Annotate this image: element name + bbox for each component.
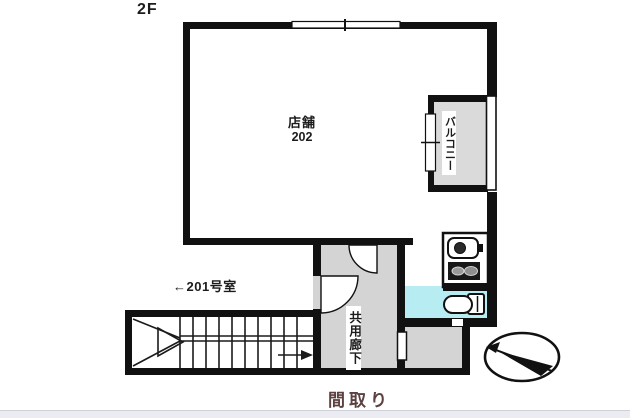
- stair-up-arrow-head: [301, 350, 313, 360]
- toilet-icon: [444, 294, 484, 314]
- footer-strip: [0, 410, 630, 418]
- toilet-bottom-notch: [452, 319, 463, 326]
- balcony-railing: [487, 96, 497, 190]
- balcony-floor: [432, 100, 487, 187]
- wall-right-upper: [487, 22, 497, 97]
- wall-toilet-top: [443, 283, 496, 291]
- room-shop-number: 202: [272, 130, 332, 145]
- room-shop-name: 店舗: [272, 115, 332, 130]
- stove-burner-icon: [465, 267, 478, 276]
- staircase: [133, 317, 313, 368]
- neighbor-room-label: ←201号室: [173, 276, 237, 295]
- door-leaf-corridor-right: [398, 332, 407, 360]
- toilet-bowl: [444, 296, 472, 313]
- wall-shop-bottom: [183, 238, 413, 245]
- wall-left: [183, 22, 190, 245]
- wall-corridor-left-lower: [313, 309, 321, 372]
- wall-landing-right: [462, 325, 470, 373]
- wall-corridor-left-upper: [313, 243, 321, 276]
- room-shop-label: 店舗 202: [272, 115, 332, 145]
- plan-caption: 間取り: [328, 386, 391, 411]
- balcony-label: バルコニー: [442, 111, 456, 175]
- wall-right-lower: [487, 192, 497, 327]
- stair-diagonal-top: [133, 319, 180, 338]
- wall-balcony-left-b: [428, 171, 434, 187]
- wall-stairs-left: [125, 310, 132, 373]
- stove-burner-icon: [452, 267, 464, 275]
- north-compass-icon: [485, 333, 559, 381]
- floorplan-page: 2F 店舗 202 バルコニー ←201号室 共用廊下 間取り: [0, 0, 630, 418]
- wall-stairs-top: [125, 310, 320, 317]
- sink-faucet-icon: [455, 243, 466, 254]
- floorplan-drawing: [0, 0, 630, 418]
- stair-diagonal-bottom: [133, 341, 180, 366]
- sink-handle-icon: [477, 244, 483, 252]
- wall-balcony-top: [428, 95, 488, 102]
- corridor-label: 共用廊下: [346, 306, 361, 370]
- wall-balcony-bottom: [428, 185, 488, 192]
- landing-floor: [403, 322, 466, 372]
- wall-balcony-left-a: [428, 100, 434, 114]
- floor-label: 2F: [137, 1, 158, 19]
- wall-bottom: [125, 368, 470, 375]
- wall-toilet-bottom: [399, 318, 496, 327]
